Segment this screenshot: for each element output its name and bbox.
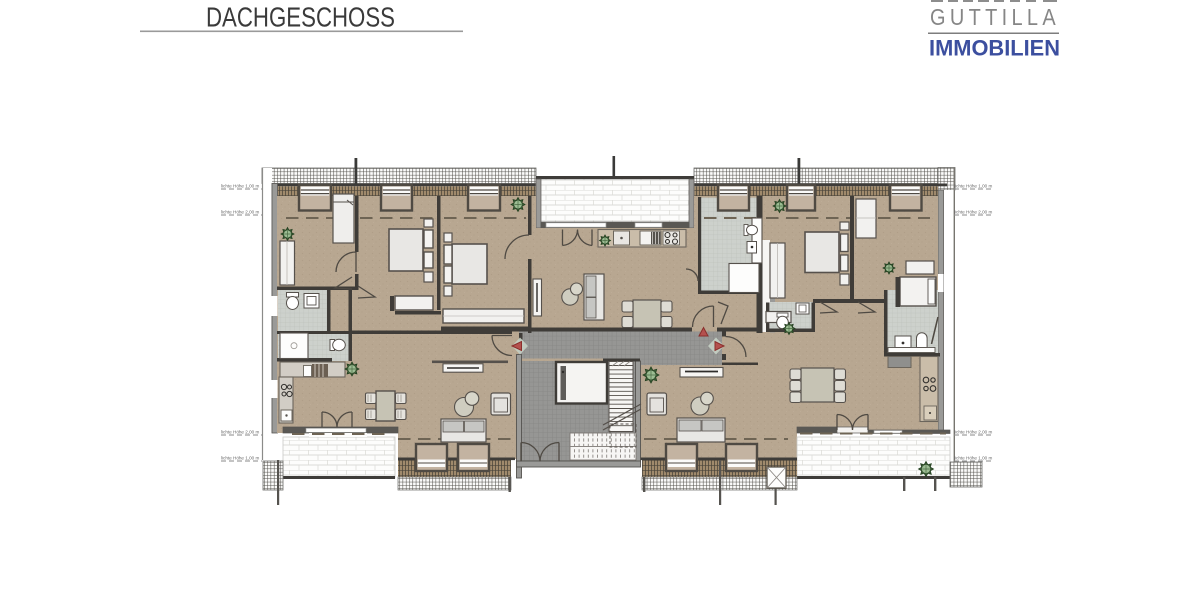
svg-text:lichte Höhe 1,00 m: lichte Höhe 1,00 m: [954, 184, 992, 189]
svg-text:GUTTILLA: GUTTILLA: [930, 4, 1060, 30]
svg-text:lichte Höhe 2,00 m: lichte Höhe 2,00 m: [221, 430, 259, 435]
svg-text:DACHGESCHOSS: DACHGESCHOSS: [206, 2, 395, 33]
svg-text:lichte Höhe 1,00 m: lichte Höhe 1,00 m: [221, 456, 259, 461]
svg-text:lichte Höhe 1,00 m: lichte Höhe 1,00 m: [954, 456, 992, 461]
svg-text:lichte Höhe 2,00 m: lichte Höhe 2,00 m: [954, 430, 992, 435]
svg-text:lichte Höhe 1,00 m: lichte Höhe 1,00 m: [221, 184, 259, 189]
svg-text:IMMOBILIEN: IMMOBILIEN: [929, 36, 1060, 61]
svg-text:lichte Höhe 2,00 m: lichte Höhe 2,00 m: [221, 210, 259, 215]
svg-text:lichte Höhe 2,00 m: lichte Höhe 2,00 m: [954, 210, 992, 215]
